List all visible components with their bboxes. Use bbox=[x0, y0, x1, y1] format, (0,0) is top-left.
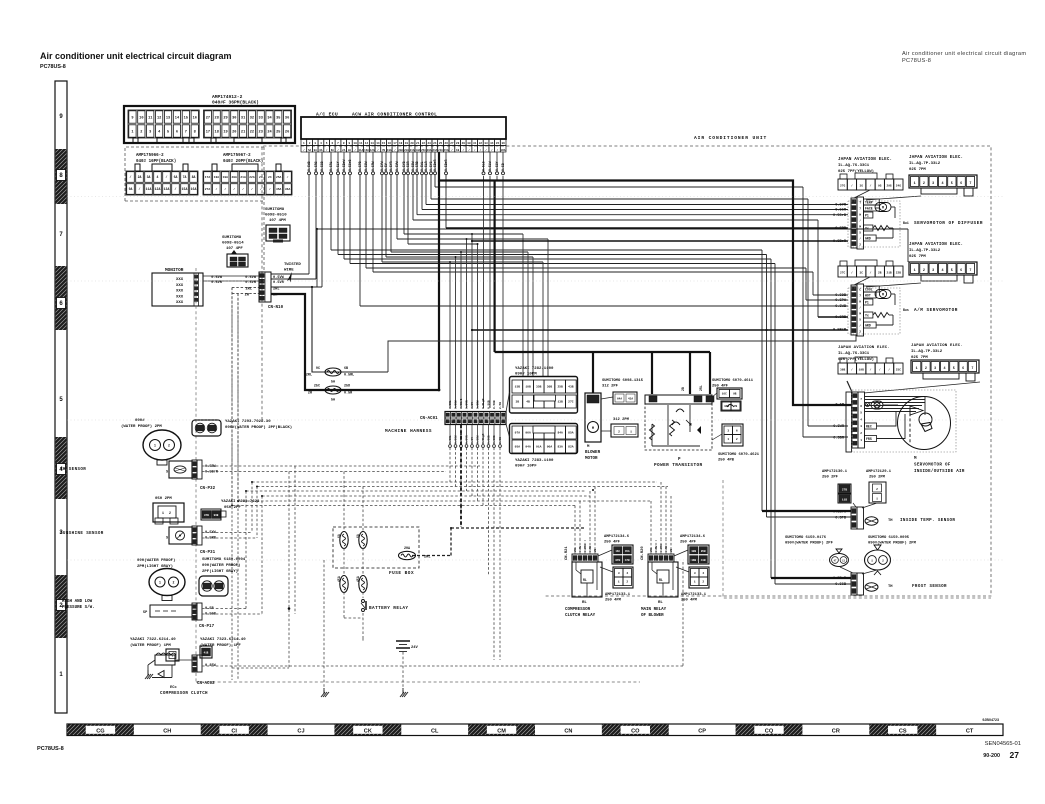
svg-text:/: / bbox=[851, 184, 853, 188]
svg-text:16A: 16A bbox=[191, 187, 197, 191]
svg-text:CN-AC02: CN-AC02 bbox=[197, 682, 215, 686]
svg-text:090#: 090# bbox=[135, 419, 145, 423]
svg-text:JAPAN AVIATION ELEC.: JAPAN AVIATION ELEC. bbox=[838, 158, 892, 162]
svg-text:COMPRESSOR CLUTCH: COMPRESSOR CLUTCH bbox=[160, 692, 208, 696]
svg-text:12A: 12A bbox=[370, 149, 375, 152]
svg-text:7: 7 bbox=[859, 207, 861, 210]
svg-text:/: / bbox=[879, 368, 881, 372]
svg-text:0.5GrB: 0.5GrB bbox=[833, 213, 847, 218]
svg-text:107 4PF: 107 4PF bbox=[226, 247, 243, 251]
svg-text:/: / bbox=[326, 148, 328, 152]
svg-text:15B: 15B bbox=[515, 386, 521, 389]
svg-text:107 4PM: 107 4PM bbox=[269, 219, 286, 223]
svg-text:7A: 7A bbox=[183, 175, 187, 179]
svg-text:IL-AQ-7S-33C1: IL-AQ-7S-33C1 bbox=[838, 352, 870, 356]
svg-text:87B: 87B bbox=[204, 514, 209, 517]
svg-text:0.5YR: 0.5YR bbox=[835, 204, 847, 208]
svg-text:7: 7 bbox=[969, 269, 971, 273]
svg-text:YAZAKI 7283-1100: YAZAKI 7283-1100 bbox=[515, 459, 554, 463]
svg-text:0.5YR: 0.5YR bbox=[389, 161, 393, 171]
svg-text:040#F 36PM(BLACK): 040#F 36PM(BLACK) bbox=[212, 100, 259, 106]
svg-text:6: 6 bbox=[860, 405, 862, 408]
svg-text:2.5B: 2.5B bbox=[499, 402, 502, 409]
svg-text:1: 1 bbox=[914, 182, 916, 186]
svg-text:16C: 16C bbox=[722, 393, 727, 396]
svg-text:25B: 25B bbox=[557, 386, 563, 389]
svg-text:Bus: Bus bbox=[903, 308, 909, 312]
svg-text:83A: 83A bbox=[557, 446, 563, 449]
svg-text:(WATER PROOF) 1PM: (WATER PROOF) 1PM bbox=[130, 643, 171, 648]
svg-text:CM: CM bbox=[497, 729, 506, 735]
svg-text:2B: 2B bbox=[670, 548, 673, 552]
svg-text:6A: 6A bbox=[337, 534, 341, 538]
svg-text:4: 4 bbox=[626, 572, 628, 575]
svg-text:3: 3 bbox=[314, 142, 316, 145]
svg-text:10: 10 bbox=[139, 116, 143, 120]
svg-text:/: / bbox=[859, 236, 861, 240]
svg-text:0.5RB: 0.5RB bbox=[415, 161, 419, 171]
svg-text:11A: 11A bbox=[358, 149, 363, 152]
svg-text:PC78US-8: PC78US-8 bbox=[40, 64, 66, 70]
svg-text:1: 1 bbox=[131, 130, 133, 134]
svg-text:1: 1 bbox=[916, 367, 918, 371]
svg-text:33: 33 bbox=[484, 142, 488, 145]
svg-text:0.5VR: 0.5VR bbox=[211, 281, 223, 285]
svg-text:0.5GB: 0.5GB bbox=[205, 613, 217, 617]
svg-text:8A: 8A bbox=[192, 175, 196, 179]
svg-text:M: M bbox=[592, 427, 594, 431]
svg-text:27: 27 bbox=[1010, 750, 1020, 760]
svg-text:0.5WB: 0.5WB bbox=[307, 161, 311, 171]
svg-text:FRS: FRS bbox=[866, 437, 872, 441]
svg-text:2: 2 bbox=[860, 432, 862, 435]
svg-text:18: 18 bbox=[215, 130, 219, 134]
svg-text:15A: 15A bbox=[182, 187, 188, 191]
svg-text:025 7PM: 025 7PM bbox=[909, 255, 926, 259]
svg-text:0.5BrR: 0.5BrR bbox=[833, 576, 847, 581]
svg-text:31: 31 bbox=[473, 142, 477, 145]
svg-text:24A: 24A bbox=[432, 149, 437, 152]
svg-text:040# 20PF(BLACK): 040# 20PF(BLACK) bbox=[223, 159, 263, 164]
svg-text:7: 7 bbox=[859, 294, 861, 297]
svg-text:/: / bbox=[870, 271, 872, 275]
svg-text:43B: 43B bbox=[568, 386, 574, 389]
svg-text:SUMITOMO 6098-1315: SUMITOMO 6098-1315 bbox=[602, 379, 644, 383]
svg-text:36B: 36B bbox=[691, 559, 696, 562]
svg-text:27C: 27C bbox=[568, 401, 574, 404]
svg-text:0.5R: 0.5R bbox=[835, 404, 844, 408]
svg-text:COMPRESSOR: COMPRESSOR bbox=[565, 608, 591, 612]
svg-text:AMP174912-2: AMP174912-2 bbox=[212, 94, 243, 100]
svg-text:/: / bbox=[215, 187, 217, 191]
svg-text:3A: 3A bbox=[348, 149, 352, 152]
svg-text:/: / bbox=[337, 148, 339, 152]
svg-text:35A: 35A bbox=[276, 188, 282, 191]
svg-text:0.5YW: 0.5YW bbox=[205, 531, 217, 535]
svg-text:AMP172130-1: AMP172130-1 bbox=[822, 470, 848, 474]
svg-text:0.5V: 0.5V bbox=[384, 163, 388, 171]
svg-text:AMP175966-2: AMP175966-2 bbox=[136, 154, 164, 158]
svg-text:2: 2 bbox=[925, 367, 927, 371]
svg-text:AMP172133-1: AMP172133-1 bbox=[681, 593, 707, 597]
svg-text:2RL: 2RL bbox=[574, 547, 577, 552]
svg-text:M: M bbox=[859, 225, 861, 228]
svg-text:/: / bbox=[474, 148, 476, 152]
svg-text:0.5WB: 0.5WB bbox=[835, 305, 847, 309]
svg-text:22A: 22A bbox=[438, 149, 443, 152]
svg-text:5: 5 bbox=[953, 367, 955, 371]
svg-text:0.5VR: 0.5VR bbox=[245, 281, 257, 285]
svg-text:15: 15 bbox=[184, 116, 188, 120]
svg-text:20: 20 bbox=[410, 142, 414, 145]
svg-text:FUSE BOX: FUSE BOX bbox=[389, 571, 414, 576]
svg-text:CL: CL bbox=[431, 729, 439, 735]
svg-text:GRD: GRD bbox=[865, 237, 871, 241]
svg-text:/: / bbox=[269, 187, 271, 191]
svg-text:7: 7 bbox=[971, 367, 973, 371]
svg-text:6: 6 bbox=[736, 429, 738, 432]
svg-text:TWISTED: TWISTED bbox=[284, 263, 301, 267]
svg-text:0.5RW: 0.5RW bbox=[477, 400, 480, 409]
svg-text:250 4PF: 250 4PF bbox=[680, 541, 697, 545]
svg-text:TH: TH bbox=[888, 519, 893, 523]
svg-text:CJ: CJ bbox=[297, 729, 304, 735]
svg-text:INSIDE TEMP. SENSOR: INSIDE TEMP. SENSOR bbox=[900, 519, 955, 523]
svg-text:090# 10PF: 090# 10PF bbox=[515, 465, 537, 469]
svg-text:/: / bbox=[870, 368, 872, 372]
svg-text:2: 2 bbox=[168, 444, 170, 448]
svg-text:27G: 27G bbox=[840, 185, 845, 188]
svg-text:HIGH AND LOW: HIGH AND LOW bbox=[62, 600, 93, 604]
svg-text:CK: CK bbox=[364, 729, 372, 735]
svg-text:0.5YR: 0.5YR bbox=[466, 400, 469, 409]
svg-text:4: 4 bbox=[158, 130, 161, 134]
svg-text:2B: 2B bbox=[681, 387, 685, 391]
svg-text:6098-0514: 6098-0514 bbox=[222, 242, 244, 246]
svg-text:19B: 19B bbox=[859, 369, 864, 372]
svg-text:/: / bbox=[851, 271, 853, 275]
svg-text:36A: 36A bbox=[285, 188, 291, 191]
svg-text:24: 24 bbox=[433, 142, 437, 145]
svg-text:CN-P17: CN-P17 bbox=[199, 625, 215, 629]
svg-text:025 7PM: 025 7PM bbox=[911, 356, 928, 360]
svg-text:PC78US-8: PC78US-8 bbox=[902, 58, 931, 64]
svg-text:CO: CO bbox=[631, 729, 640, 735]
svg-text:0.5RB: 0.5RB bbox=[493, 400, 496, 409]
svg-text:0.5OB: 0.5OB bbox=[835, 294, 847, 298]
svg-text:28: 28 bbox=[456, 142, 460, 145]
svg-text:47: 47 bbox=[834, 559, 837, 562]
svg-text:W: W bbox=[859, 213, 861, 216]
svg-text:6098-0510: 6098-0510 bbox=[265, 214, 287, 218]
svg-text:FACE: FACE bbox=[865, 207, 873, 211]
svg-text:JAPAN AVIATION ELEC.: JAPAN AVIATION ELEC. bbox=[838, 346, 890, 350]
svg-text:0.5LY: 0.5LY bbox=[336, 161, 340, 171]
svg-text:CN-P32: CN-P32 bbox=[200, 487, 216, 491]
svg-text:32: 32 bbox=[479, 142, 483, 145]
svg-text:1: 1 bbox=[159, 581, 161, 585]
svg-text:0.5WR: 0.5WR bbox=[833, 425, 845, 429]
svg-text:Air conditioner unit electrica: Air conditioner unit electrical circuit … bbox=[40, 51, 232, 61]
svg-text:0.5GB: 0.5GB bbox=[320, 161, 324, 171]
svg-text:IL-AQ-7P-33L2: IL-AQ-7P-33L2 bbox=[911, 350, 943, 354]
svg-text:SUMITOMO 6070-4611: SUMITOMO 6070-4611 bbox=[712, 379, 754, 383]
svg-text:11B: 11B bbox=[842, 499, 847, 502]
svg-text:6A: 6A bbox=[356, 534, 360, 538]
svg-text:Yx: Yx bbox=[865, 314, 869, 318]
svg-text:26: 26 bbox=[445, 142, 449, 145]
svg-text:21A: 21A bbox=[240, 176, 246, 179]
svg-text:9B: 9B bbox=[733, 393, 737, 396]
svg-text:25C: 25C bbox=[896, 369, 901, 372]
svg-text:6: 6 bbox=[176, 130, 178, 134]
svg-text:2: 2 bbox=[923, 269, 925, 273]
svg-text:6: 6 bbox=[962, 367, 964, 371]
svg-text:CN-R20: CN-R20 bbox=[641, 546, 645, 560]
svg-text:JAPAN AVIATION ELEC.: JAPAN AVIATION ELEC. bbox=[911, 344, 963, 348]
svg-text:Air conditioner unit electrica: Air conditioner unit electrical circuit … bbox=[902, 51, 1026, 57]
svg-text:23: 23 bbox=[259, 130, 263, 134]
svg-text:CN: CN bbox=[564, 729, 572, 735]
svg-text:11A: 11A bbox=[146, 187, 152, 191]
svg-text:28: 28 bbox=[215, 116, 219, 120]
svg-text:CH: CH bbox=[163, 729, 171, 735]
svg-text:13: 13 bbox=[842, 559, 845, 562]
svg-text:19A: 19A bbox=[387, 149, 392, 152]
svg-text:MOTOR: MOTOR bbox=[585, 457, 598, 461]
svg-text:(WATER PROOF) 2PM: (WATER PROOF) 2PM bbox=[121, 424, 162, 429]
svg-text:24V: 24V bbox=[411, 646, 419, 650]
svg-text:5A: 5A bbox=[308, 149, 312, 152]
svg-text:96B: 96B bbox=[214, 514, 219, 517]
svg-text:SUNSHINE SENSOR: SUNSHINE SENSOR bbox=[60, 532, 104, 536]
svg-text:YAZAKI 7322-6214-40: YAZAKI 7322-6214-40 bbox=[130, 638, 176, 642]
svg-text:90A: 90A bbox=[547, 446, 553, 449]
svg-text:47B: 47B bbox=[625, 559, 630, 562]
svg-text:1: 1 bbox=[162, 511, 164, 515]
svg-text:2: 2 bbox=[309, 142, 311, 145]
svg-text:18A: 18A bbox=[214, 176, 220, 179]
svg-text:4: 4 bbox=[941, 269, 943, 273]
svg-text:RL: RL bbox=[658, 601, 663, 605]
svg-text:REC: REC bbox=[866, 425, 872, 429]
svg-text:87B: 87B bbox=[615, 559, 620, 562]
svg-text:25D: 25D bbox=[344, 385, 350, 389]
svg-text:SEN04565-01: SEN04565-01 bbox=[985, 741, 1021, 747]
svg-text:HOT: HOT bbox=[865, 294, 871, 298]
svg-text:/: / bbox=[870, 184, 872, 188]
svg-text:25C: 25C bbox=[314, 385, 320, 389]
svg-text:2R: 2R bbox=[308, 392, 313, 396]
svg-text:0.5VR: 0.5VR bbox=[273, 281, 285, 285]
svg-text:29: 29 bbox=[223, 116, 227, 120]
svg-text:5: 5 bbox=[326, 142, 328, 145]
svg-text:A/M SERVOMOTOR: A/M SERVOMOTOR bbox=[914, 308, 958, 313]
svg-text:BATTERY RELAY: BATTERY RELAY bbox=[369, 606, 408, 611]
svg-text:SUMITOMO 6159-0095: SUMITOMO 6159-0095 bbox=[868, 536, 910, 540]
svg-text:2RL: 2RL bbox=[306, 374, 312, 378]
svg-text:WIRE: WIRE bbox=[284, 269, 294, 273]
svg-text:XXX: XXX bbox=[176, 284, 184, 288]
svg-text:3: 3 bbox=[727, 429, 729, 432]
svg-text:29G: 29G bbox=[886, 185, 891, 188]
svg-text:6A: 6A bbox=[331, 149, 335, 152]
svg-text:21: 21 bbox=[416, 142, 420, 145]
svg-text:91A: 91A bbox=[536, 446, 542, 449]
svg-text:24: 24 bbox=[268, 176, 272, 179]
svg-text:21A: 21A bbox=[410, 149, 415, 152]
svg-text:0.5BrW: 0.5BrW bbox=[342, 159, 346, 171]
svg-text:/: / bbox=[242, 187, 244, 191]
svg-text:SERVOMOTOR OF DIFFUSER: SERVOMOTOR OF DIFFUSER bbox=[914, 221, 983, 226]
svg-text:12: 12 bbox=[365, 142, 369, 145]
svg-text:POWER TRANSISTOR: POWER TRANSISTOR bbox=[654, 463, 703, 468]
svg-text:9: 9 bbox=[349, 142, 351, 145]
svg-text:45A: 45A bbox=[356, 576, 360, 582]
svg-text:/: / bbox=[859, 323, 861, 327]
svg-text:1B: 1B bbox=[456, 149, 460, 152]
svg-text:SUMITOMO 6070-4621: SUMITOMO 6070-4621 bbox=[718, 453, 760, 457]
svg-text:7B: 7B bbox=[382, 149, 386, 152]
svg-text:20A: 20A bbox=[404, 547, 411, 551]
svg-text:3G: 3G bbox=[859, 185, 863, 188]
svg-text:4: 4 bbox=[943, 367, 945, 371]
svg-text:1: 1 bbox=[154, 444, 156, 448]
svg-text:T: T bbox=[859, 201, 861, 204]
svg-text:25: 25 bbox=[439, 142, 443, 145]
svg-text:22A: 22A bbox=[249, 176, 255, 179]
svg-text:9: 9 bbox=[131, 116, 133, 120]
svg-text:250 2PF: 250 2PF bbox=[822, 476, 839, 480]
svg-text:0.85W: 0.85W bbox=[660, 544, 663, 552]
svg-text:21B: 21B bbox=[886, 272, 891, 275]
svg-text:41B: 41B bbox=[701, 559, 706, 562]
svg-text:TH: TH bbox=[888, 585, 893, 589]
svg-text:0.5GW: 0.5GW bbox=[364, 161, 368, 171]
svg-text:16A: 16A bbox=[364, 149, 369, 152]
svg-text:3B: 3B bbox=[516, 401, 520, 404]
svg-text:6: 6 bbox=[960, 269, 962, 273]
svg-text:2: 2 bbox=[173, 581, 175, 585]
svg-text:0.5W: 0.5W bbox=[655, 545, 658, 552]
svg-text:5: 5 bbox=[59, 397, 63, 403]
svg-text:090#(WATER PROOF) 2PF: 090#(WATER PROOF) 2PF bbox=[785, 541, 834, 546]
svg-text:SERVOMOTOR OF: SERVOMOTOR OF bbox=[914, 464, 951, 468]
svg-text:M: M bbox=[882, 206, 884, 210]
svg-text:1: 1 bbox=[59, 672, 63, 678]
svg-text:1: 1 bbox=[876, 498, 878, 501]
svg-text:6: 6 bbox=[331, 142, 333, 145]
svg-text:CQ: CQ bbox=[765, 729, 774, 735]
svg-text:0.5RL: 0.5RL bbox=[344, 374, 354, 378]
svg-text:2A: 2A bbox=[138, 175, 142, 179]
svg-text:0.5GB: 0.5GB bbox=[488, 400, 491, 409]
svg-text:ECc: ECc bbox=[170, 686, 178, 690]
svg-text:11: 11 bbox=[359, 142, 363, 145]
svg-text:050 2PF: 050 2PF bbox=[224, 506, 241, 510]
svg-text:/: / bbox=[888, 368, 890, 372]
svg-text:3: 3 bbox=[618, 572, 620, 575]
svg-text:0.5PB: 0.5PB bbox=[835, 517, 847, 521]
svg-text:9A: 9A bbox=[129, 187, 133, 191]
svg-text:/: / bbox=[233, 187, 235, 191]
svg-text:090(WATER PROOF): 090(WATER PROOF) bbox=[137, 558, 175, 563]
svg-text:14: 14 bbox=[175, 116, 180, 120]
svg-text:22B: 22B bbox=[896, 272, 901, 275]
svg-text:BLOWER: BLOWER bbox=[585, 451, 601, 455]
svg-text:2: 2 bbox=[876, 488, 878, 491]
svg-text:0.5GR: 0.5GR bbox=[835, 209, 847, 213]
svg-text:35: 35 bbox=[496, 142, 500, 145]
svg-text:250 4PB: 250 4PB bbox=[718, 459, 735, 463]
svg-text:30: 30 bbox=[467, 142, 471, 145]
svg-text:CLUTCH RELAY: CLUTCH RELAY bbox=[565, 614, 596, 618]
svg-text:0.5BrR: 0.5BrR bbox=[833, 328, 847, 333]
svg-text:0.5BR: 0.5BR bbox=[833, 437, 845, 441]
svg-text:/: / bbox=[468, 148, 470, 152]
svg-text:13A: 13A bbox=[415, 149, 420, 152]
svg-text:YAZAKI 7282-1100: YAZAKI 7282-1100 bbox=[515, 367, 554, 371]
svg-text:5: 5 bbox=[951, 269, 953, 273]
svg-text:IL-AQ-7S-33C1: IL-AQ-7S-33C1 bbox=[838, 164, 870, 168]
svg-text:0.5VW: 0.5VW bbox=[395, 161, 399, 171]
svg-text:36A: 36A bbox=[501, 149, 506, 152]
svg-text:7: 7 bbox=[59, 232, 63, 238]
svg-text:1: 1 bbox=[303, 142, 305, 145]
svg-text:0.5RB: 0.5RB bbox=[835, 316, 847, 320]
svg-text:/: / bbox=[394, 148, 396, 152]
svg-text:45A: 45A bbox=[625, 550, 630, 553]
svg-text:0.5GW: 0.5GW bbox=[455, 400, 458, 409]
svg-text:23: 23 bbox=[427, 142, 431, 145]
svg-text:2RL: 2RL bbox=[650, 547, 653, 552]
svg-text:18: 18 bbox=[399, 142, 403, 145]
svg-text:25A: 25A bbox=[421, 149, 426, 152]
svg-text:/: / bbox=[377, 148, 379, 152]
svg-text:27B: 27B bbox=[842, 489, 847, 492]
svg-text:20A: 20A bbox=[427, 149, 432, 152]
svg-text:23A: 23A bbox=[404, 149, 409, 152]
svg-text:19: 19 bbox=[405, 142, 409, 145]
svg-text:/: / bbox=[491, 148, 493, 152]
svg-text:050 2PM: 050 2PM bbox=[155, 497, 172, 501]
svg-text:8: 8 bbox=[194, 130, 196, 134]
svg-text:97A: 97A bbox=[515, 432, 521, 435]
svg-text:P1: P1 bbox=[865, 301, 869, 305]
svg-text:RL: RL bbox=[583, 578, 587, 582]
svg-text:M: M bbox=[859, 312, 861, 315]
svg-text:0.5VW: 0.5VW bbox=[245, 276, 257, 280]
svg-text:025 7PM: 025 7PM bbox=[909, 168, 926, 172]
svg-text:0.5RL: 0.5RL bbox=[329, 161, 333, 171]
svg-text:0.5LR: 0.5LR bbox=[424, 161, 428, 171]
svg-text:0.5W: 0.5W bbox=[579, 545, 582, 552]
svg-text:7: 7 bbox=[337, 142, 339, 145]
svg-text:RL: RL bbox=[582, 601, 587, 605]
svg-text:0.5RB: 0.5RB bbox=[835, 227, 847, 231]
svg-text:30: 30 bbox=[232, 116, 236, 120]
svg-text:312 2PF: 312 2PF bbox=[602, 385, 619, 389]
svg-text:27C: 27C bbox=[840, 272, 845, 275]
svg-text:3C: 3C bbox=[859, 272, 863, 275]
svg-text:9JB04723: 9JB04723 bbox=[982, 718, 999, 722]
svg-text:84A: 84A bbox=[557, 432, 563, 435]
svg-text:17A: 17A bbox=[205, 176, 211, 179]
svg-text:OF BLOWER: OF BLOWER bbox=[641, 614, 664, 618]
svg-text:5A: 5A bbox=[331, 381, 336, 385]
svg-text:17: 17 bbox=[206, 130, 210, 134]
svg-text:YAZAKI 7323-6214-40: YAZAKI 7323-6214-40 bbox=[200, 638, 246, 642]
